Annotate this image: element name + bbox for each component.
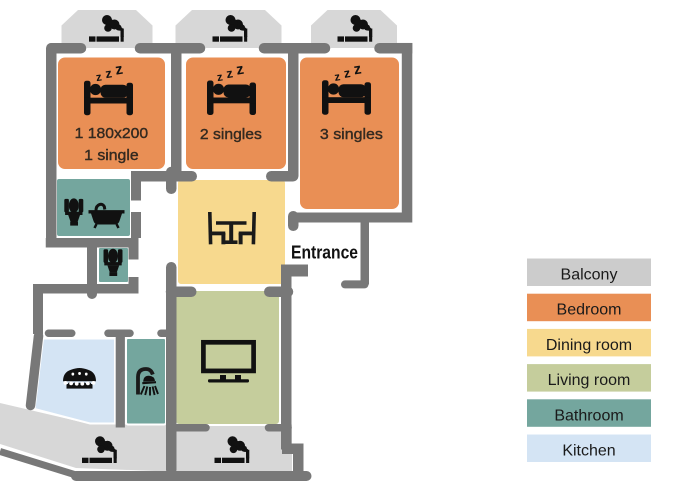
svg-text:Living room: Living room <box>548 372 631 389</box>
svg-text:Entrance: Entrance <box>291 242 358 263</box>
svg-text:3 singles: 3 singles <box>320 126 383 143</box>
svg-text:Bathroom: Bathroom <box>554 407 623 424</box>
svg-text:Dining room: Dining room <box>546 337 632 354</box>
svg-text:Bedroom: Bedroom <box>557 302 622 319</box>
svg-text:Balcony: Balcony <box>561 267 618 284</box>
svg-text:Kitchen: Kitchen <box>562 443 615 460</box>
svg-text:1 single: 1 single <box>84 147 139 164</box>
svg-text:1 180x200: 1 180x200 <box>75 125 149 142</box>
svg-text:2 singles: 2 singles <box>200 126 262 143</box>
